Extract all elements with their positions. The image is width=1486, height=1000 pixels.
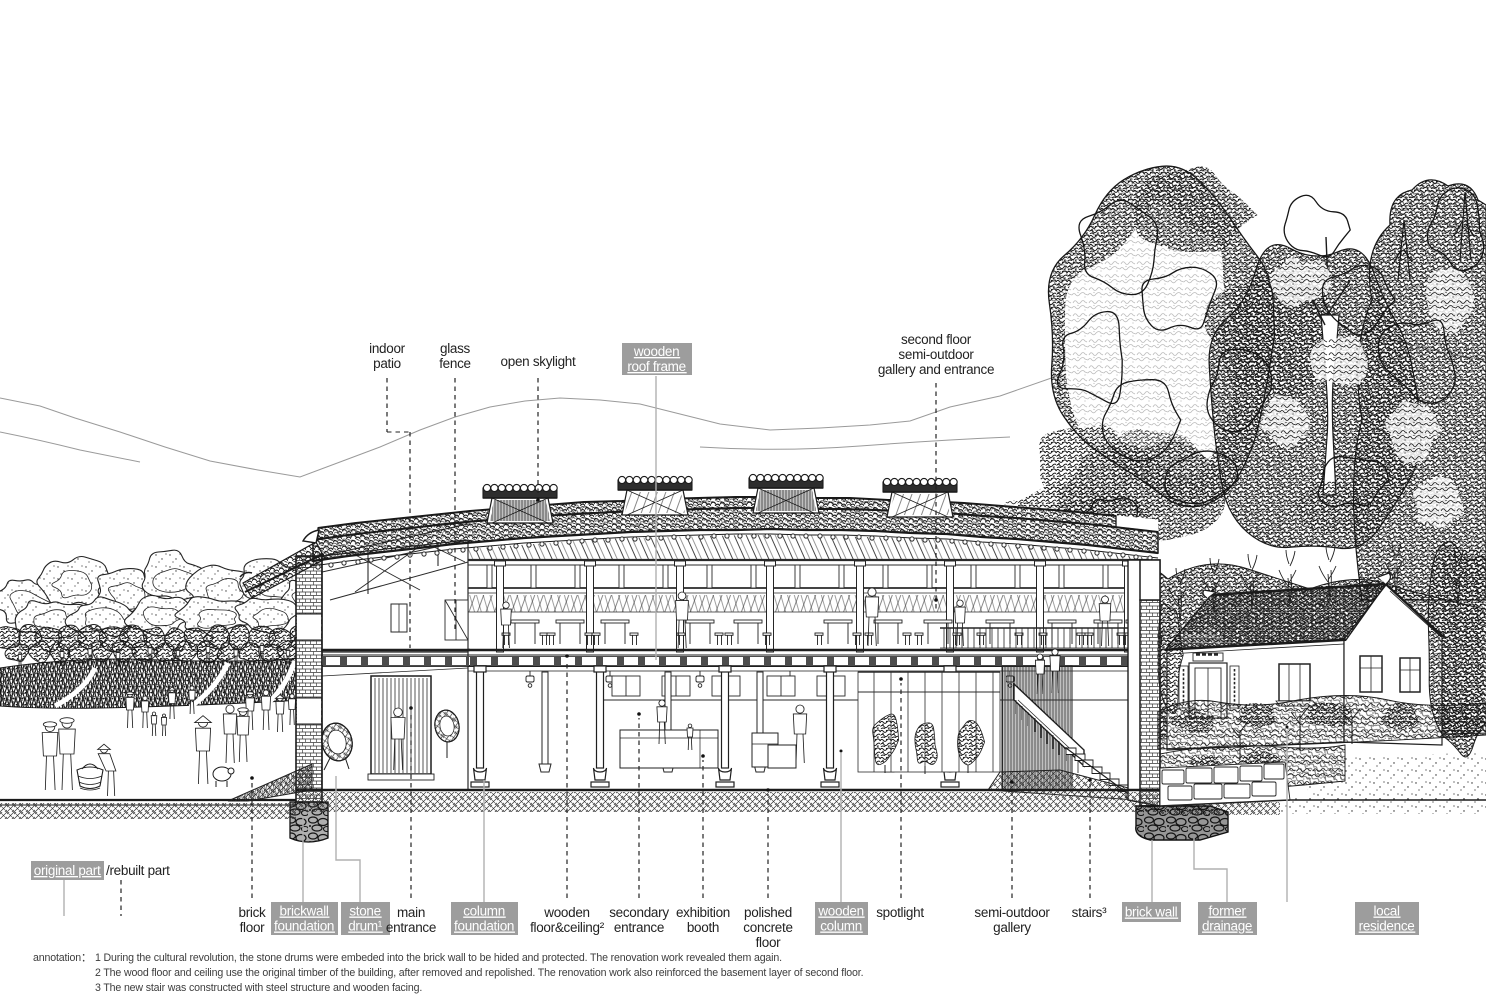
- svg-text:foundation: foundation: [454, 919, 515, 934]
- svg-text:fence: fence: [439, 356, 471, 371]
- svg-text:entrance: entrance: [614, 920, 664, 935]
- svg-text:open skylight: open skylight: [501, 354, 576, 369]
- svg-text:entrance: entrance: [386, 920, 436, 935]
- svg-text:annotation：: annotation：: [33, 952, 91, 964]
- svg-text:original part: original part: [34, 863, 101, 878]
- svg-text:main: main: [397, 905, 425, 920]
- svg-text:wooden: wooden: [817, 904, 864, 919]
- svg-text:second floor: second floor: [901, 332, 972, 347]
- svg-text:exhibition: exhibition: [676, 905, 730, 920]
- svg-text:spotlight: spotlight: [876, 905, 924, 920]
- svg-text:floor&ceiling²: floor&ceiling²: [530, 920, 605, 935]
- svg-text:brick: brick: [238, 905, 266, 920]
- svg-text:wooden: wooden: [543, 905, 590, 920]
- svg-text:former: former: [1208, 904, 1246, 919]
- svg-text:column: column: [820, 919, 863, 934]
- svg-text:drainage: drainage: [1202, 919, 1253, 934]
- svg-text:brickwall: brickwall: [280, 904, 330, 919]
- svg-text:concrete: concrete: [743, 920, 792, 935]
- svg-text:drum¹: drum¹: [348, 919, 383, 934]
- svg-text:3 The new stair was constructe: 3 The new stair was constructed with ste…: [95, 982, 422, 994]
- svg-text:gallery: gallery: [993, 920, 1031, 935]
- svg-text:gallery and entrance: gallery and entrance: [878, 362, 994, 377]
- svg-text:column: column: [463, 904, 506, 919]
- svg-text:floor: floor: [240, 920, 266, 935]
- svg-text:floor: floor: [756, 935, 782, 950]
- svg-text:/rebuilt part: /rebuilt part: [106, 863, 170, 878]
- svg-text:roof frame: roof frame: [627, 359, 686, 374]
- svg-text:glass: glass: [440, 341, 471, 356]
- svg-text:1 During the cultural revoluti: 1 During the cultural revolution, the st…: [95, 952, 782, 964]
- svg-text:residence: residence: [1359, 919, 1416, 934]
- svg-text:booth: booth: [687, 920, 719, 935]
- svg-text:secondary: secondary: [609, 905, 669, 920]
- svg-text:foundation: foundation: [274, 919, 335, 934]
- svg-text:brick wall: brick wall: [1125, 905, 1178, 920]
- svg-text:patio: patio: [373, 356, 401, 371]
- svg-text:2 The wood floor and ceiling u: 2 The wood floor and ceiling use the ori…: [95, 967, 863, 979]
- svg-text:indoor: indoor: [369, 341, 406, 356]
- svg-text:semi-outdoor: semi-outdoor: [974, 905, 1050, 920]
- svg-text:local: local: [1373, 904, 1400, 919]
- svg-text:polished: polished: [744, 905, 792, 920]
- svg-text:stone: stone: [349, 904, 381, 919]
- svg-text:wooden: wooden: [633, 344, 680, 359]
- svg-text:semi-outdoor: semi-outdoor: [898, 347, 974, 362]
- svg-text:stairs³: stairs³: [1072, 905, 1107, 920]
